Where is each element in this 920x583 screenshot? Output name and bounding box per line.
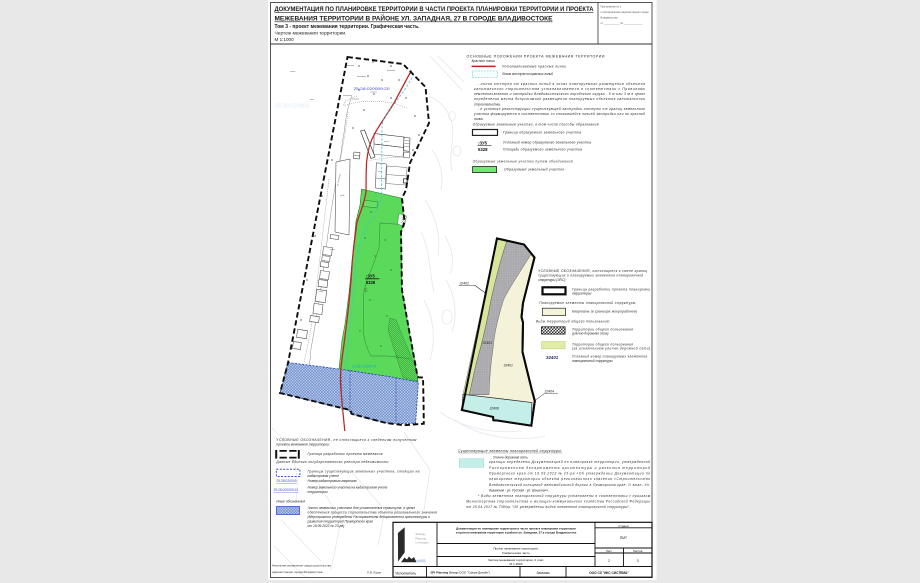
svg-text::ЗУ5: :ЗУ5: [478, 140, 488, 145]
svg-text:Министерства строительства и ж: Министерства строительства и жилищно-ком…: [466, 500, 650, 504]
svg-text:П.В. Юдин: П.В. Юдин: [367, 571, 382, 575]
svg-text:25:28:020009:20: 25:28:020009:20: [354, 86, 391, 91]
svg-text:Planning: Planning: [416, 536, 427, 540]
svg-text:школа: школа: [384, 141, 389, 143]
svg-text:Иные обозначения: Иные обозначения: [276, 500, 305, 504]
svg-text:клуб: клуб: [378, 171, 382, 173]
svg-text:(улично-дорожная сеть): (улично-дорожная сеть): [572, 332, 608, 336]
svg-text:Образуемые земельные участки,: Образуемые земельные участки, в том числ…: [473, 122, 599, 126]
svg-text:32402: 32402: [460, 282, 470, 286]
svg-text:Граница образуемого земельного: Граница образуемого земельного участка: [503, 130, 581, 134]
svg-text:25:28:020009: 25:28:020009: [275, 104, 309, 110]
svg-text:SPI Planning Group (ООО "Сфера: SPI Planning Group (ООО "Сфера-Дизайн"): [431, 571, 490, 575]
svg-text:Том 3 - проект межевания терри: Том 3 - проект межевания территории. Гра…: [275, 23, 421, 30]
svg-text:Планируемые элементы планирово: Планируемые элементы планировочной струк…: [539, 301, 636, 305]
svg-text:структуры (ЭПС):: структуры (ЭПС):: [538, 278, 566, 282]
svg-text:2: 2: [608, 559, 610, 563]
svg-text::ЗУ5: :ЗУ5: [366, 273, 375, 278]
svg-text:- в условиях реконструкции сущ: - в условиях реконструкции существующей …: [478, 107, 646, 111]
svg-text:планировочной структуры: планировочной структуры: [572, 359, 613, 363]
svg-text:и проекта межевания территории: и проекта межевания территории в районе …: [456, 531, 577, 535]
svg-text:Кварталы (в границах микрорайо: Кварталы (в границах микрорайонов): [572, 310, 637, 314]
svg-text:от 19.09.2023 № 23-рв): от 19.09.2023 № 23-рв): [308, 524, 345, 528]
svg-text:(Мероприятия утверждены Распор: (Мероприятия утверждены Распоряжением де…: [308, 515, 431, 519]
svg-text:25:28:020009:21: 25:28:020009:21: [274, 488, 299, 492]
svg-text:Существующие элементы планиров: Существующие элементы планировочной стру…: [458, 449, 562, 453]
svg-text:(за исключением улично-дорожно: (за исключением улично-дорожной сети): [572, 347, 650, 351]
svg-text:Данные Единого государственног: Данные Единого государственного реестра …: [275, 460, 388, 464]
svg-text:Владивостокской кольцевой авто: Владивостокской кольцевой автомобильной …: [489, 483, 650, 487]
svg-text:ПМТ: ПМТ: [620, 536, 627, 540]
svg-text:32403: 32403: [483, 341, 493, 345]
svg-text:кадастровом учете: кадастровом учете: [308, 474, 340, 478]
svg-text:территории: территории: [308, 490, 328, 494]
svg-text:планировке территории объекта: планировке территории объекта региональн…: [489, 477, 650, 481]
svg-text:Номер кадастрового квартала: Номер кадастрового квартала: [308, 479, 357, 483]
svg-text:Начальник управления градостро: Начальник управления градостроительства: [272, 563, 331, 567]
svg-text:32408: 32408: [490, 407, 500, 411]
svg-text:Условный номер образуемого зем: Условный номер образуемого земельного уч…: [503, 141, 591, 145]
svg-text:* Виды элементов планировочно: * Виды элементов планировочной структуры…: [478, 494, 651, 498]
svg-text:линии: линии: [473, 117, 483, 121]
svg-text:Приложение № 1: Приложение № 1: [601, 5, 622, 9]
svg-text:землепользования и застройки В: землепользования и застройки Владивосток…: [473, 92, 645, 96]
svg-text:жилые: жилые: [290, 71, 296, 73]
svg-text:Графическая часть: Графическая часть: [502, 551, 530, 555]
svg-text:Проект межевания территории.: Проект межевания территории.: [493, 546, 539, 550]
svg-text:Распоряжением департамента арх: Распоряжением департамента архитектуры и…: [489, 466, 650, 470]
svg-text:25:28:020009:21: 25:28:020009:21: [352, 365, 377, 369]
svg-text:проекта межевания территории:: проекта межевания территории:: [276, 443, 329, 447]
svg-text:от 25.04.2017 № 738/пр "Об утв: от 25.04.2017 № 738/пр "Об утверждении в…: [466, 505, 630, 509]
svg-text:строительства.: строительства.: [474, 102, 501, 106]
svg-text:Strategy: Strategy: [416, 532, 427, 536]
svg-text:Улично-дорожная сеть: Улично-дорожная сеть: [493, 456, 528, 460]
svg-text:Стадия: Стадия: [618, 524, 629, 528]
svg-text:границы определены Документаци: границы определены Документацией по план…: [489, 460, 650, 464]
svg-text:от ___________ № _____________: от ___________ № _____________: [601, 22, 644, 25]
svg-text:территории: территории: [572, 292, 592, 296]
svg-text:- линия отступа от красных лин: - линия отступа от красных линий в зонах…: [478, 82, 646, 86]
svg-text:Устанавливаемые красные линии: Устанавливаемые красные линии: [502, 65, 566, 69]
svg-text:25:28:020009: 25:28:020009: [276, 479, 296, 483]
svg-text:М 1:1000: М 1:1000: [275, 37, 295, 42]
svg-text:32404: 32404: [545, 389, 555, 393]
svg-text:32401: 32401: [546, 355, 559, 360]
svg-text:In-novation: In-novation: [416, 541, 430, 545]
svg-text:гараж: гараж: [330, 249, 336, 251]
svg-text:ООО СЗ "ИКС СИСТЕМА": ООО СЗ "ИКС СИСТЕМА": [589, 571, 629, 575]
svg-text:МЕЖЕВАНИЯ ТЕРРИТОРИИ В РАЙОНЕ: МЕЖЕВАНИЯ ТЕРРИТОРИИ В РАЙОНЕ УЛ. ЗАПАДН…: [275, 15, 553, 23]
svg-text:5328: 5328: [366, 280, 376, 285]
svg-text:Граница разработки проекта меж: Граница разработки проекта межевания: [308, 452, 383, 456]
svg-text:5328: 5328: [478, 147, 488, 152]
svg-text:Красные линии: Красные линии: [472, 59, 496, 63]
svg-text:Номер земельного участка на ка: Номер земельного участка на кадастровом …: [308, 486, 388, 490]
svg-text:Границы существующих земельных: Границы существующих земельных участков,…: [308, 469, 420, 473]
svg-text:Площадь образуемого земельного: Площадь образуемого земельного участка: [503, 148, 582, 152]
svg-text:администрации города Владивост: администрации города Владивостока: [272, 570, 323, 574]
svg-text:Виды территорий общего пользов: Виды территорий общего пользования:: [536, 320, 610, 324]
svg-text:обеспечения процесса строитель: обеспечения процесса строительства объек…: [308, 510, 438, 514]
svg-text:участка формируются в соответс: участка формируются в соответствии со сл…: [473, 112, 645, 116]
svg-text:Чертеж межевания территории.: Чертеж межевания территории.: [275, 31, 347, 36]
svg-text:М 1:1000: М 1:1000: [510, 562, 523, 566]
svg-text:Части земельных участков для у: Части земельных участков для установлени…: [308, 506, 416, 510]
svg-text:капитального строительства уст: капитального строительства устанавливает…: [474, 87, 645, 91]
svg-text:Исполнитель: Исполнитель: [396, 571, 417, 575]
svg-text:Линия отступа от красных линий: Линия отступа от красных линий: [501, 72, 553, 76]
svg-text:32401: 32401: [504, 364, 514, 368]
svg-text:Образуемые земельные участки п: Образуемые земельные участки путем объед…: [473, 160, 573, 164]
svg-text:Образуемый земельный участок: Образуемый земельный участок: [504, 168, 564, 172]
svg-text:Лист: Лист: [606, 549, 613, 553]
svg-text:Листов: Листов: [633, 549, 643, 553]
svg-text:Казанская - ул. Русская - ул.: Казанская - ул. Русская - ул. Шошина»».: [489, 489, 549, 493]
svg-text:УСЛОВНЫЕ ОБОЗНАЧЕНИЯ, не относ: УСЛОВНЫЕ ОБОЗНАЧЕНИЯ, не относящиеся к с…: [276, 438, 417, 442]
svg-text:Приморского края от 19.09.2023: Приморского края от 19.09.2023 № 23-рв «…: [489, 472, 650, 476]
svg-text:к постановлению администрации: к постановлению администрации города: [601, 11, 650, 14]
svg-text:Владивостока: Владивостока: [601, 16, 619, 20]
svg-text:определения места допустимого: определения места допустимого размещения…: [474, 97, 645, 101]
svg-text:3: 3: [637, 559, 639, 563]
svg-text:Заказчик: Заказчик: [536, 571, 550, 575]
svg-text:ДОКУМЕНТАЦИЯ ПО ПЛАНИРОВКЕ ТЕР: ДОКУМЕНТАЦИЯ ПО ПЛАНИРОВКЕ ТЕРРИТОРИИ В …: [275, 6, 595, 13]
svg-text:развития территорий Приморског: развития территорий Приморского края: [307, 519, 374, 523]
svg-text:кирп.: кирп.: [310, 99, 315, 101]
